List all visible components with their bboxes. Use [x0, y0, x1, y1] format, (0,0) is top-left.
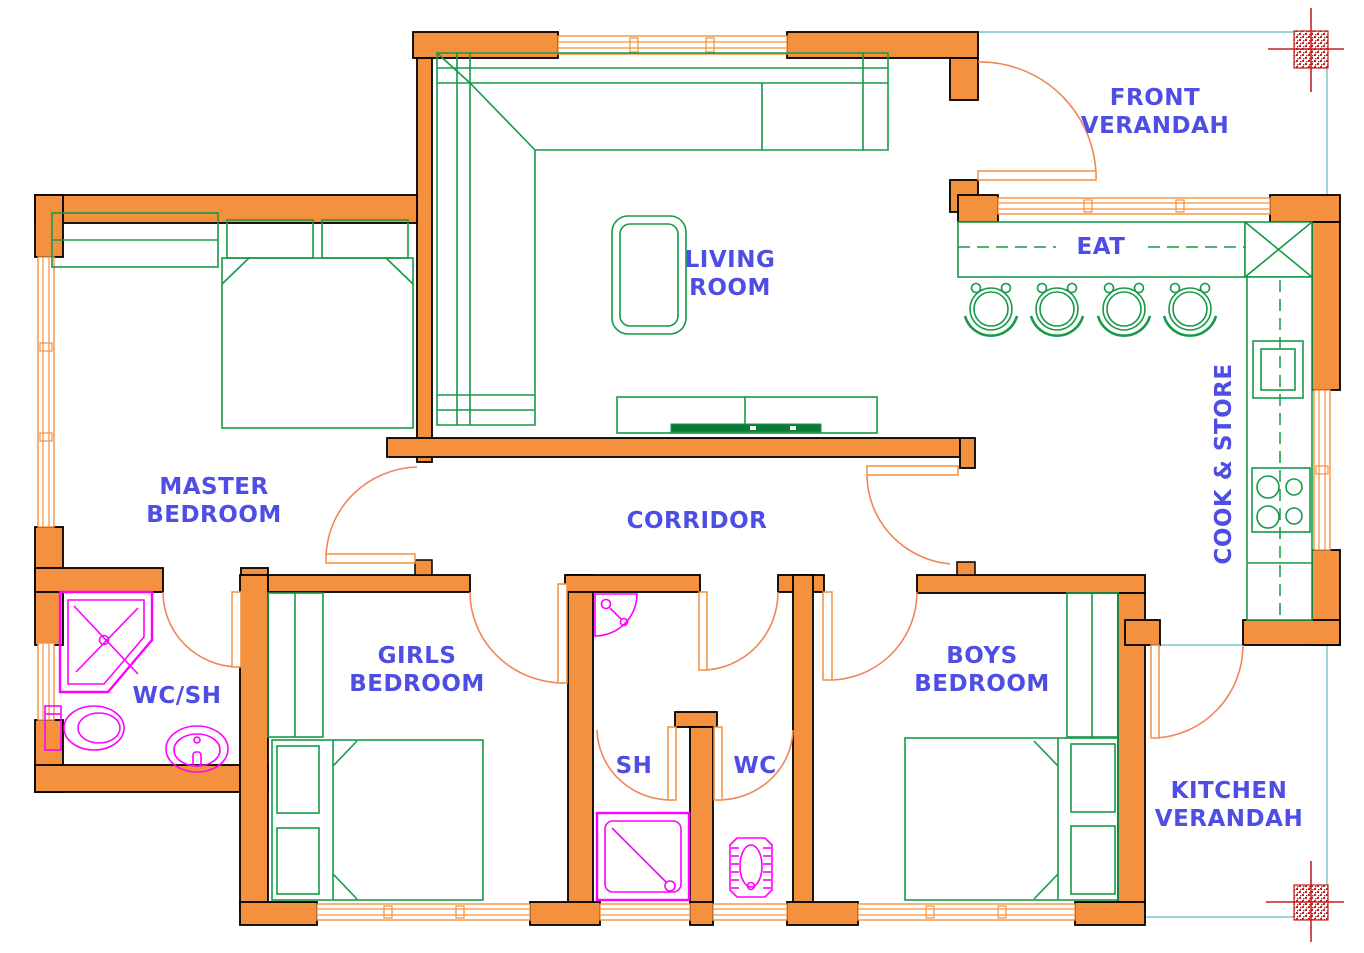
label-master-bedroom: MASTER: [159, 474, 268, 500]
wall-segment: [1075, 902, 1145, 925]
label-wc: WC: [733, 753, 776, 779]
girls-bedroom-door: [470, 584, 567, 683]
floor-plan-canvas: FRONT VERANDAH LIVING ROOM EAT COOK & ST…: [0, 0, 1364, 953]
pillow: [227, 220, 313, 258]
bar-stool: [1031, 284, 1083, 336]
wall-segment: [960, 438, 975, 468]
label-kitchen-verandah: VERANDAH: [1155, 806, 1303, 832]
window: [600, 904, 690, 920]
label-boys-bedroom: BEDROOM: [914, 671, 1050, 697]
label-cook-store: COOK & STORE: [1211, 363, 1237, 564]
wall-segment: [917, 575, 1145, 593]
bar-stool: [965, 284, 1017, 336]
boys-bedroom-door: [823, 592, 917, 680]
wall-segment: [690, 727, 713, 903]
master-bedroom-furniture: [52, 213, 413, 428]
door-jamb: [957, 562, 975, 575]
coffee-table: [612, 216, 686, 334]
label-master-bedroom: BEDROOM: [146, 502, 282, 528]
pillow: [322, 220, 408, 258]
pillow: [277, 746, 319, 813]
pillow: [1071, 826, 1115, 894]
wall-segment: [530, 902, 600, 925]
floor-plan-drawing: FRONT VERANDAH LIVING ROOM EAT COOK & ST…: [0, 0, 1364, 953]
wall-segment: [35, 765, 268, 792]
label-living-room: LIVING: [685, 247, 776, 273]
wall-segment: [35, 195, 417, 223]
main-entrance-door: [978, 62, 1096, 180]
wall-segment: [1243, 620, 1340, 645]
corner-shower: [60, 592, 152, 692]
corner-counter: [1245, 222, 1312, 277]
wall-segment: [413, 32, 558, 58]
wall-segment: [387, 438, 960, 457]
wardrobe-boys: [1067, 593, 1118, 737]
double-bed-master: [222, 220, 413, 428]
kitchen-door: [867, 466, 958, 564]
wall-segment: [1270, 195, 1340, 222]
label-front-verandah: FRONT: [1110, 85, 1200, 111]
l-shaped-sofa: [437, 53, 888, 425]
wall-segment: [675, 712, 717, 727]
double-bed-boys: [905, 738, 1118, 900]
label-kitchen-verandah: KITCHEN: [1171, 778, 1288, 804]
window: [38, 257, 54, 527]
wall-segment: [958, 195, 998, 222]
wall-segment: [690, 902, 713, 925]
label-girls-bedroom: BEDROOM: [349, 671, 485, 697]
window: [558, 36, 787, 54]
squat-wc: [730, 838, 772, 897]
wall-segment: [787, 32, 978, 58]
window: [858, 904, 1075, 920]
door-jamb: [415, 560, 432, 575]
wardrobe-girls: [268, 593, 323, 737]
label-wc-sh: WC/SH: [133, 683, 222, 709]
sanitary-fixtures: [45, 592, 772, 900]
window: [998, 198, 1270, 214]
wcsh-door: [163, 592, 241, 667]
wall-segment: [35, 568, 163, 592]
wall-segment: [568, 575, 593, 903]
wall-segment: [35, 195, 63, 257]
bar-stools: [965, 284, 1216, 336]
girls-bedroom-furniture: [268, 593, 483, 900]
window: [38, 643, 54, 720]
column-marker-se: [1266, 861, 1344, 942]
window: [317, 904, 530, 920]
wall-segment: [417, 58, 432, 462]
wall-segment: [787, 902, 858, 925]
shower-tray: [597, 813, 689, 900]
kitchen-verandah-door: [1151, 645, 1243, 738]
bath-lobby-door: [699, 592, 778, 670]
living-room-furniture: [437, 53, 888, 433]
column-marker-ne: [1268, 8, 1344, 92]
label-corridor: CORRIDOR: [627, 508, 768, 534]
label-girls-bedroom: GIRLS: [378, 643, 457, 669]
label-living-room: ROOM: [689, 275, 771, 301]
wall-segment: [240, 902, 317, 925]
dining-kitchen: [958, 222, 1312, 620]
wall-segment: [950, 58, 978, 100]
boys-bedroom-furniture: [905, 593, 1118, 900]
pillow: [277, 828, 319, 894]
tv: [671, 424, 821, 432]
window: [1314, 390, 1330, 550]
wall-segment: [268, 575, 470, 592]
master-bedroom-door: [326, 467, 417, 563]
wall-segment: [240, 575, 268, 910]
label-front-verandah: VERANDAH: [1081, 113, 1229, 139]
label-sh: SH: [616, 753, 653, 779]
wall-segment: [793, 575, 813, 903]
pillow: [1071, 744, 1115, 812]
wall-segment: [1125, 620, 1160, 645]
label-eat: EAT: [1077, 234, 1126, 260]
bar-stool: [1164, 284, 1216, 336]
bar-stool: [1098, 284, 1150, 336]
wall-segment: [1312, 222, 1340, 390]
window: [713, 904, 787, 920]
tv-console: [617, 397, 877, 433]
wall-segment: [565, 575, 700, 592]
double-bed-girls: [272, 740, 483, 900]
corner-basin: [595, 594, 637, 636]
label-boys-bedroom: BOYS: [946, 643, 1017, 669]
